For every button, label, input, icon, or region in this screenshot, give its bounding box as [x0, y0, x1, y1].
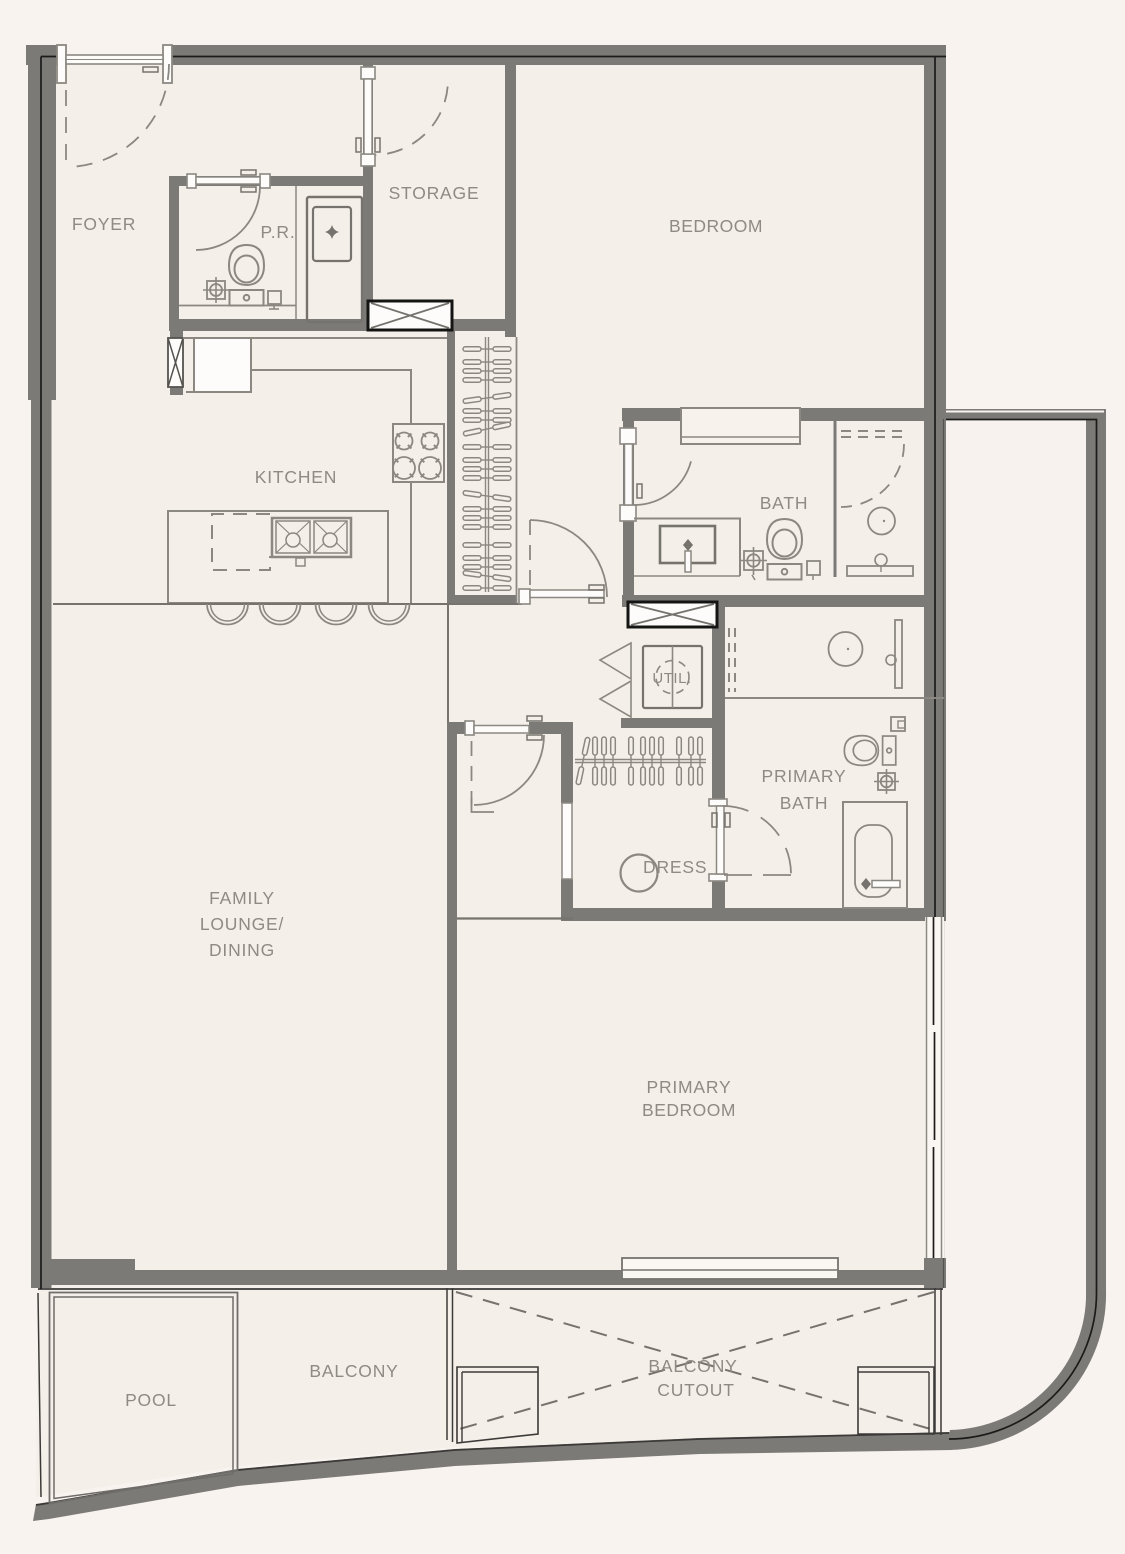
svg-text:BEDROOM: BEDROOM [669, 216, 763, 236]
svg-text:BATH: BATH [780, 793, 829, 813]
svg-text:BALCONY: BALCONY [648, 1356, 737, 1376]
svg-text:FOYER: FOYER [72, 214, 136, 234]
svg-text:PRIMARY: PRIMARY [761, 766, 846, 786]
svg-text:KITCHEN: KITCHEN [255, 467, 337, 487]
svg-text:DINING: DINING [209, 940, 275, 960]
svg-text:BATH: BATH [760, 493, 809, 513]
svg-text:BEDROOM: BEDROOM [642, 1100, 736, 1120]
svg-text:PRIMARY: PRIMARY [646, 1077, 731, 1097]
svg-text:STORAGE: STORAGE [389, 183, 480, 203]
svg-text:POOL: POOL [125, 1390, 177, 1410]
svg-text:DRESS: DRESS [643, 857, 707, 877]
svg-text:FAMILY: FAMILY [209, 888, 275, 908]
svg-text:P.R.: P.R. [261, 222, 296, 242]
svg-text:LOUNGE/: LOUNGE/ [200, 914, 284, 934]
svg-text:BALCONY: BALCONY [309, 1361, 398, 1381]
svg-text:CUTOUT: CUTOUT [657, 1380, 734, 1400]
svg-text:UTIL.: UTIL. [652, 670, 691, 687]
